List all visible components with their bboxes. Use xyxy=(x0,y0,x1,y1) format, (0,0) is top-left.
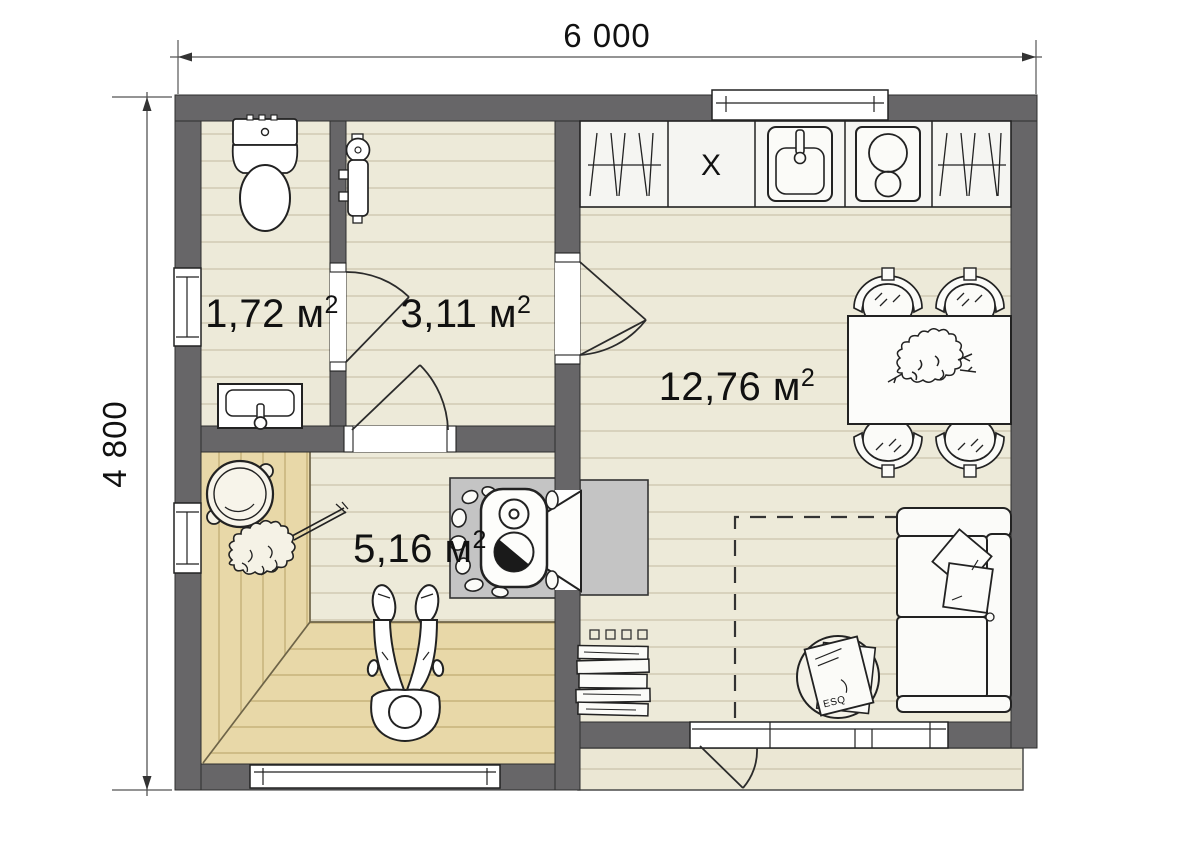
coffee-table: ESQ xyxy=(797,636,879,718)
head xyxy=(389,696,421,728)
wall-left xyxy=(175,121,201,790)
washbasin-icon xyxy=(218,384,302,429)
dining-table xyxy=(848,316,1011,424)
cooktop xyxy=(856,127,920,201)
hall-sauna-door-opening xyxy=(353,426,447,452)
window-kitchen-top xyxy=(712,90,888,120)
window-sauna-left xyxy=(174,503,201,573)
arrow-icon xyxy=(178,53,192,62)
living-area-label: 12,76 м2 xyxy=(659,364,816,409)
height-dimension: 4 800 xyxy=(96,400,133,488)
cabinet-x-label: X xyxy=(701,149,721,182)
window-bathroom-left xyxy=(174,268,201,346)
pillow-icon xyxy=(943,563,993,613)
jamb xyxy=(344,426,353,452)
hall-area-label: 3,11 м2 xyxy=(401,291,532,336)
terrace xyxy=(578,748,1023,790)
sauna-area-label: 5,16 м2 xyxy=(353,526,487,571)
arrow-icon xyxy=(143,776,152,790)
kitchen-sink xyxy=(768,127,832,201)
shelf-square xyxy=(606,630,615,639)
jamb xyxy=(555,355,580,364)
hall-living-door-opening xyxy=(555,262,580,355)
floor-plan-drawing: X xyxy=(0,0,1200,848)
bathroom-area-label: 1,72 м2 xyxy=(205,291,339,336)
window-sauna-bottom xyxy=(250,765,500,788)
bucket-icon xyxy=(207,461,273,527)
shelf-square xyxy=(590,630,599,639)
wall-top xyxy=(175,95,1037,121)
window-door-living-bottom xyxy=(690,722,948,748)
arrow-icon xyxy=(1022,53,1036,62)
jamb xyxy=(330,362,346,371)
wall-right xyxy=(1011,121,1037,748)
sofa xyxy=(897,508,1011,712)
toilet-icon xyxy=(233,115,298,231)
arrow-icon xyxy=(143,97,152,111)
shelf-square xyxy=(638,630,647,639)
jamb xyxy=(330,263,346,272)
floor-plan: X xyxy=(0,0,1200,848)
kitchen-counter: X xyxy=(580,121,1011,207)
stove-hearth-living xyxy=(580,480,648,595)
faucet-icon xyxy=(796,130,804,154)
width-dimension: 6 000 xyxy=(563,17,651,54)
jamb xyxy=(555,253,580,262)
shelf-square xyxy=(622,630,631,639)
hall-floor xyxy=(346,121,555,426)
